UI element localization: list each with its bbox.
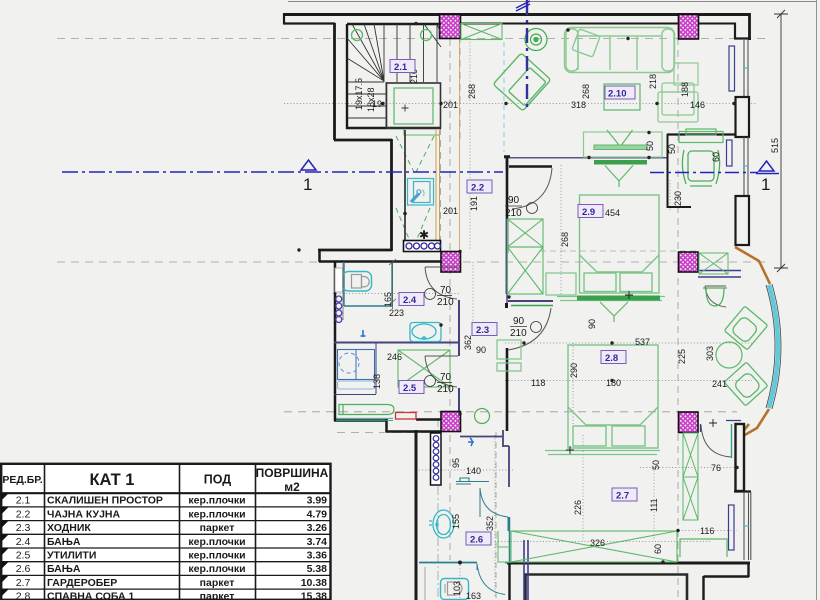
svg-text:90: 90 (476, 345, 486, 355)
svg-text:2.6: 2.6 (470, 535, 483, 546)
svg-text:318: 318 (571, 100, 586, 110)
svg-text:паркет: паркет (200, 522, 235, 534)
svg-text:95: 95 (451, 458, 461, 468)
svg-text:515: 515 (770, 138, 780, 153)
svg-text:218: 218 (648, 74, 658, 89)
svg-text:3.99: 3.99 (307, 495, 328, 507)
svg-text:537: 537 (635, 337, 650, 347)
svg-text:90: 90 (508, 195, 520, 206)
svg-text:кер.плочки: кер.плочки (188, 563, 245, 575)
svg-text:КАТ 1: КАТ 1 (89, 471, 134, 489)
svg-text:ПОВРШИНА: ПОВРШИНА (256, 466, 329, 480)
svg-text:паркет: паркет (200, 577, 235, 589)
svg-text:90: 90 (587, 319, 597, 329)
svg-text:50: 50 (667, 144, 677, 154)
svg-text:2.2: 2.2 (471, 183, 484, 194)
svg-text:РЕД.БР.: РЕД.БР. (2, 474, 42, 486)
svg-text:210: 210 (437, 384, 454, 395)
svg-text:111: 111 (649, 498, 659, 512)
svg-text:кер.плочки: кер.плочки (188, 550, 245, 562)
svg-text:70: 70 (440, 372, 452, 383)
svg-text:138: 138 (372, 374, 382, 389)
svg-text:3.74: 3.74 (307, 536, 328, 548)
svg-text:2.1: 2.1 (394, 62, 408, 73)
svg-text:3.36: 3.36 (307, 550, 328, 562)
svg-text:паркет: паркет (200, 591, 235, 600)
svg-text:кер.плочки: кер.плочки (188, 536, 245, 548)
svg-text:2.2: 2.2 (16, 508, 31, 520)
svg-text:2.1: 2.1 (16, 495, 31, 507)
svg-text:3.26: 3.26 (307, 522, 328, 534)
svg-text:2.5: 2.5 (16, 550, 31, 562)
svg-text:268: 268 (467, 84, 477, 99)
svg-text:2.4: 2.4 (403, 295, 417, 306)
svg-text:268: 268 (581, 84, 591, 99)
svg-text:362: 362 (463, 335, 473, 350)
svg-text:2.7: 2.7 (16, 577, 31, 589)
svg-text:УТИЛИТИ: УТИЛИТИ (47, 550, 96, 562)
svg-text:2.8: 2.8 (605, 353, 618, 364)
svg-text:50: 50 (645, 141, 655, 151)
svg-text:116: 116 (700, 526, 714, 536)
svg-text:1: 1 (761, 175, 770, 194)
svg-text:4.79: 4.79 (307, 508, 328, 520)
svg-text:210: 210 (510, 328, 527, 339)
svg-text:2.3: 2.3 (16, 522, 31, 534)
svg-text:180: 180 (606, 378, 621, 388)
svg-text:146: 146 (690, 100, 705, 110)
svg-text:188: 188 (680, 82, 690, 97)
svg-text:2.8: 2.8 (16, 591, 31, 600)
svg-text:118: 118 (531, 378, 545, 388)
svg-text:2.4: 2.4 (16, 536, 31, 548)
svg-text:19x17.5: 19x17.5 (354, 78, 364, 110)
svg-text:76: 76 (711, 463, 721, 473)
svg-text:191: 191 (469, 196, 479, 211)
svg-text:2.10: 2.10 (608, 89, 627, 100)
svg-text:352: 352 (485, 516, 495, 531)
svg-text:2.7: 2.7 (616, 491, 629, 502)
svg-text:2.6: 2.6 (16, 563, 31, 575)
svg-text:ГАРДЕРОБЕР: ГАРДЕРОБЕР (47, 577, 117, 589)
svg-text:163: 163 (466, 591, 481, 600)
svg-text:19: 19 (372, 99, 382, 109)
svg-text:м2: м2 (284, 480, 300, 494)
svg-text:кер.плочки: кер.плочки (188, 495, 245, 507)
svg-text:226: 226 (573, 500, 583, 515)
svg-text:ХОДНИК: ХОДНИК (47, 522, 91, 534)
svg-text:103: 103 (452, 581, 462, 596)
svg-text:50: 50 (651, 460, 661, 470)
svg-text:268: 268 (560, 232, 570, 247)
svg-text:БАЊА: БАЊА (47, 536, 81, 548)
svg-text:155: 155 (451, 514, 461, 529)
svg-text:70: 70 (440, 285, 452, 296)
svg-text:165: 165 (383, 292, 393, 307)
svg-text:241: 241 (712, 379, 727, 389)
svg-text:140: 140 (466, 466, 481, 476)
svg-text:кер.плочки: кер.плочки (188, 508, 245, 520)
svg-text:201: 201 (443, 100, 458, 110)
svg-text:230: 230 (673, 191, 683, 206)
svg-text:1: 1 (303, 175, 312, 194)
svg-text:225: 225 (677, 349, 687, 364)
svg-text:90: 90 (513, 316, 525, 327)
svg-text:15.38: 15.38 (301, 591, 327, 600)
svg-text:210: 210 (437, 297, 454, 308)
svg-text:223: 223 (389, 308, 404, 318)
svg-text:ЧАЈНА КУЈНА: ЧАЈНА КУЈНА (47, 508, 121, 520)
svg-text:454: 454 (605, 208, 620, 218)
svg-text:2.9: 2.9 (582, 207, 595, 218)
svg-text:2.3: 2.3 (476, 325, 489, 336)
svg-text:246: 246 (387, 352, 402, 362)
svg-text:201: 201 (443, 206, 458, 216)
svg-text:СКАЛИШЕН ПРОСТОР: СКАЛИШЕН ПРОСТОР (47, 495, 163, 507)
svg-text:БАЊА: БАЊА (47, 563, 81, 575)
svg-text:5.38: 5.38 (307, 563, 328, 575)
svg-text:60: 60 (653, 544, 663, 554)
svg-text:210: 210 (505, 208, 522, 219)
svg-text:303: 303 (705, 346, 715, 361)
svg-text:326: 326 (590, 538, 605, 548)
svg-text:60: 60 (711, 152, 721, 162)
svg-text:2.5: 2.5 (403, 383, 417, 394)
svg-text:290: 290 (569, 363, 579, 378)
svg-text:10.38: 10.38 (301, 577, 327, 589)
svg-text:ПОД: ПОД (204, 473, 232, 487)
svg-text:СПАВНА СОБА 1: СПАВНА СОБА 1 (47, 591, 135, 600)
